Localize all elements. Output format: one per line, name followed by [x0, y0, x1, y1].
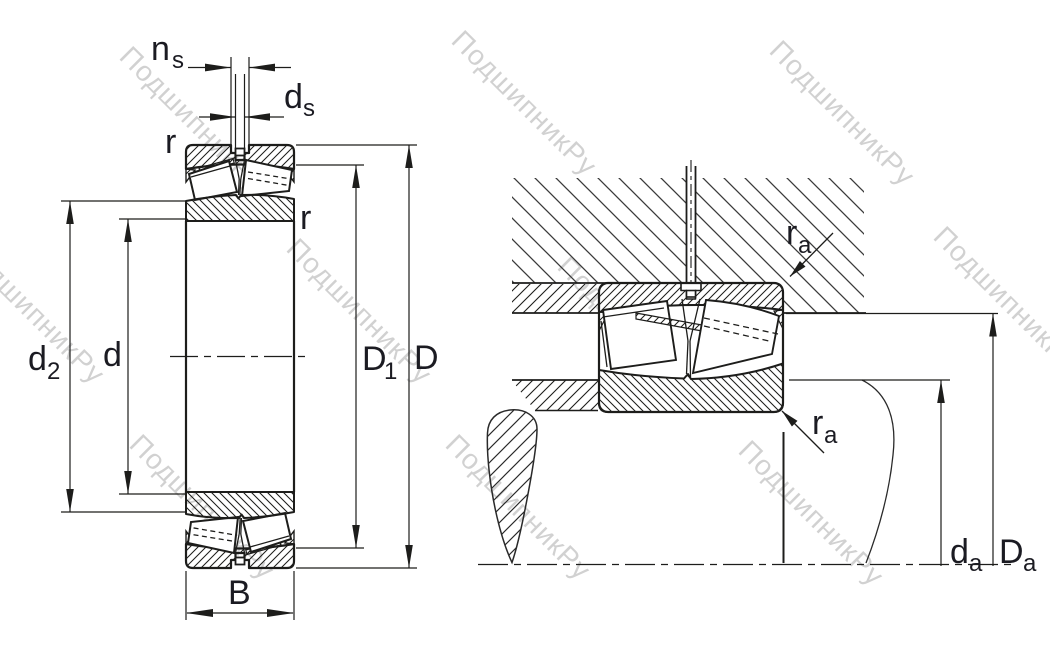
- label-ns-sub: s: [172, 47, 184, 74]
- housing-section: [512, 178, 687, 283]
- label-ra-bottom-sub: a: [824, 422, 838, 449]
- label-r-side: r: [300, 199, 311, 237]
- watermark: ПодшипникРу: [446, 24, 603, 181]
- label-d2-sub: 2: [47, 358, 60, 385]
- label-r-top: r: [165, 123, 176, 161]
- label-ra-top: r: [786, 214, 797, 252]
- label-ds-sub: s: [303, 95, 315, 122]
- label-ra-bottom: r: [812, 404, 823, 442]
- label-ns: n: [151, 30, 170, 68]
- label-dda: D: [999, 533, 1024, 571]
- label-dda-sub: a: [1023, 550, 1037, 577]
- bearing-drawing-svg: ПодшипникРу ПодшипникРу ПодшипникРу Подш…: [0, 0, 1050, 650]
- watermark: ПодшипникРу: [733, 434, 890, 591]
- technical-drawing-page: ПодшипникРу ПодшипникРу ПодшипникРу Подш…: [0, 0, 1050, 650]
- label-ra-top-sub: a: [798, 232, 812, 259]
- shaft-break-curve: [862, 380, 894, 563]
- label-d1: D: [362, 340, 387, 378]
- label-da-sub: a: [969, 550, 983, 577]
- label-b: B: [228, 574, 251, 612]
- cover-ring-section: [512, 284, 598, 313]
- label-d1-sub: 1: [384, 358, 397, 385]
- watermark: ПодшипникРу: [764, 34, 921, 191]
- inner-ring-section: [186, 195, 294, 221]
- lube-hole-section: [236, 149, 245, 156]
- label-da: d: [950, 533, 969, 571]
- label-d: d: [103, 336, 122, 374]
- label-ds: d: [284, 78, 303, 116]
- bearing-top-section: [186, 145, 294, 221]
- label-d2: d: [28, 340, 47, 378]
- label-dcap: D: [414, 339, 439, 377]
- right-lube-hole-section: [687, 291, 696, 298]
- watermark: ПодшипникРу: [928, 220, 1050, 377]
